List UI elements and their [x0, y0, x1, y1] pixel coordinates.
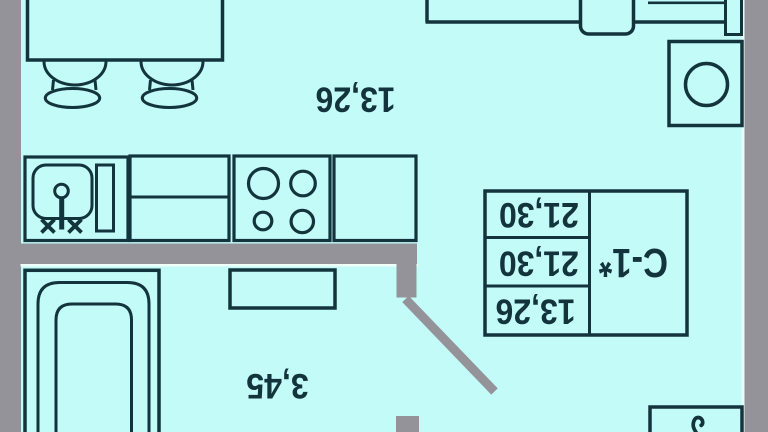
svg-text:21,30: 21,30 — [499, 195, 579, 235]
svg-text:13,26: 13,26 — [496, 291, 576, 331]
svg-text:13,26: 13,26 — [316, 79, 396, 119]
svg-text:3,45: 3,45 — [246, 365, 308, 405]
svg-text:С-1*: С-1* — [598, 240, 668, 285]
svg-text:21,30: 21,30 — [499, 243, 579, 283]
